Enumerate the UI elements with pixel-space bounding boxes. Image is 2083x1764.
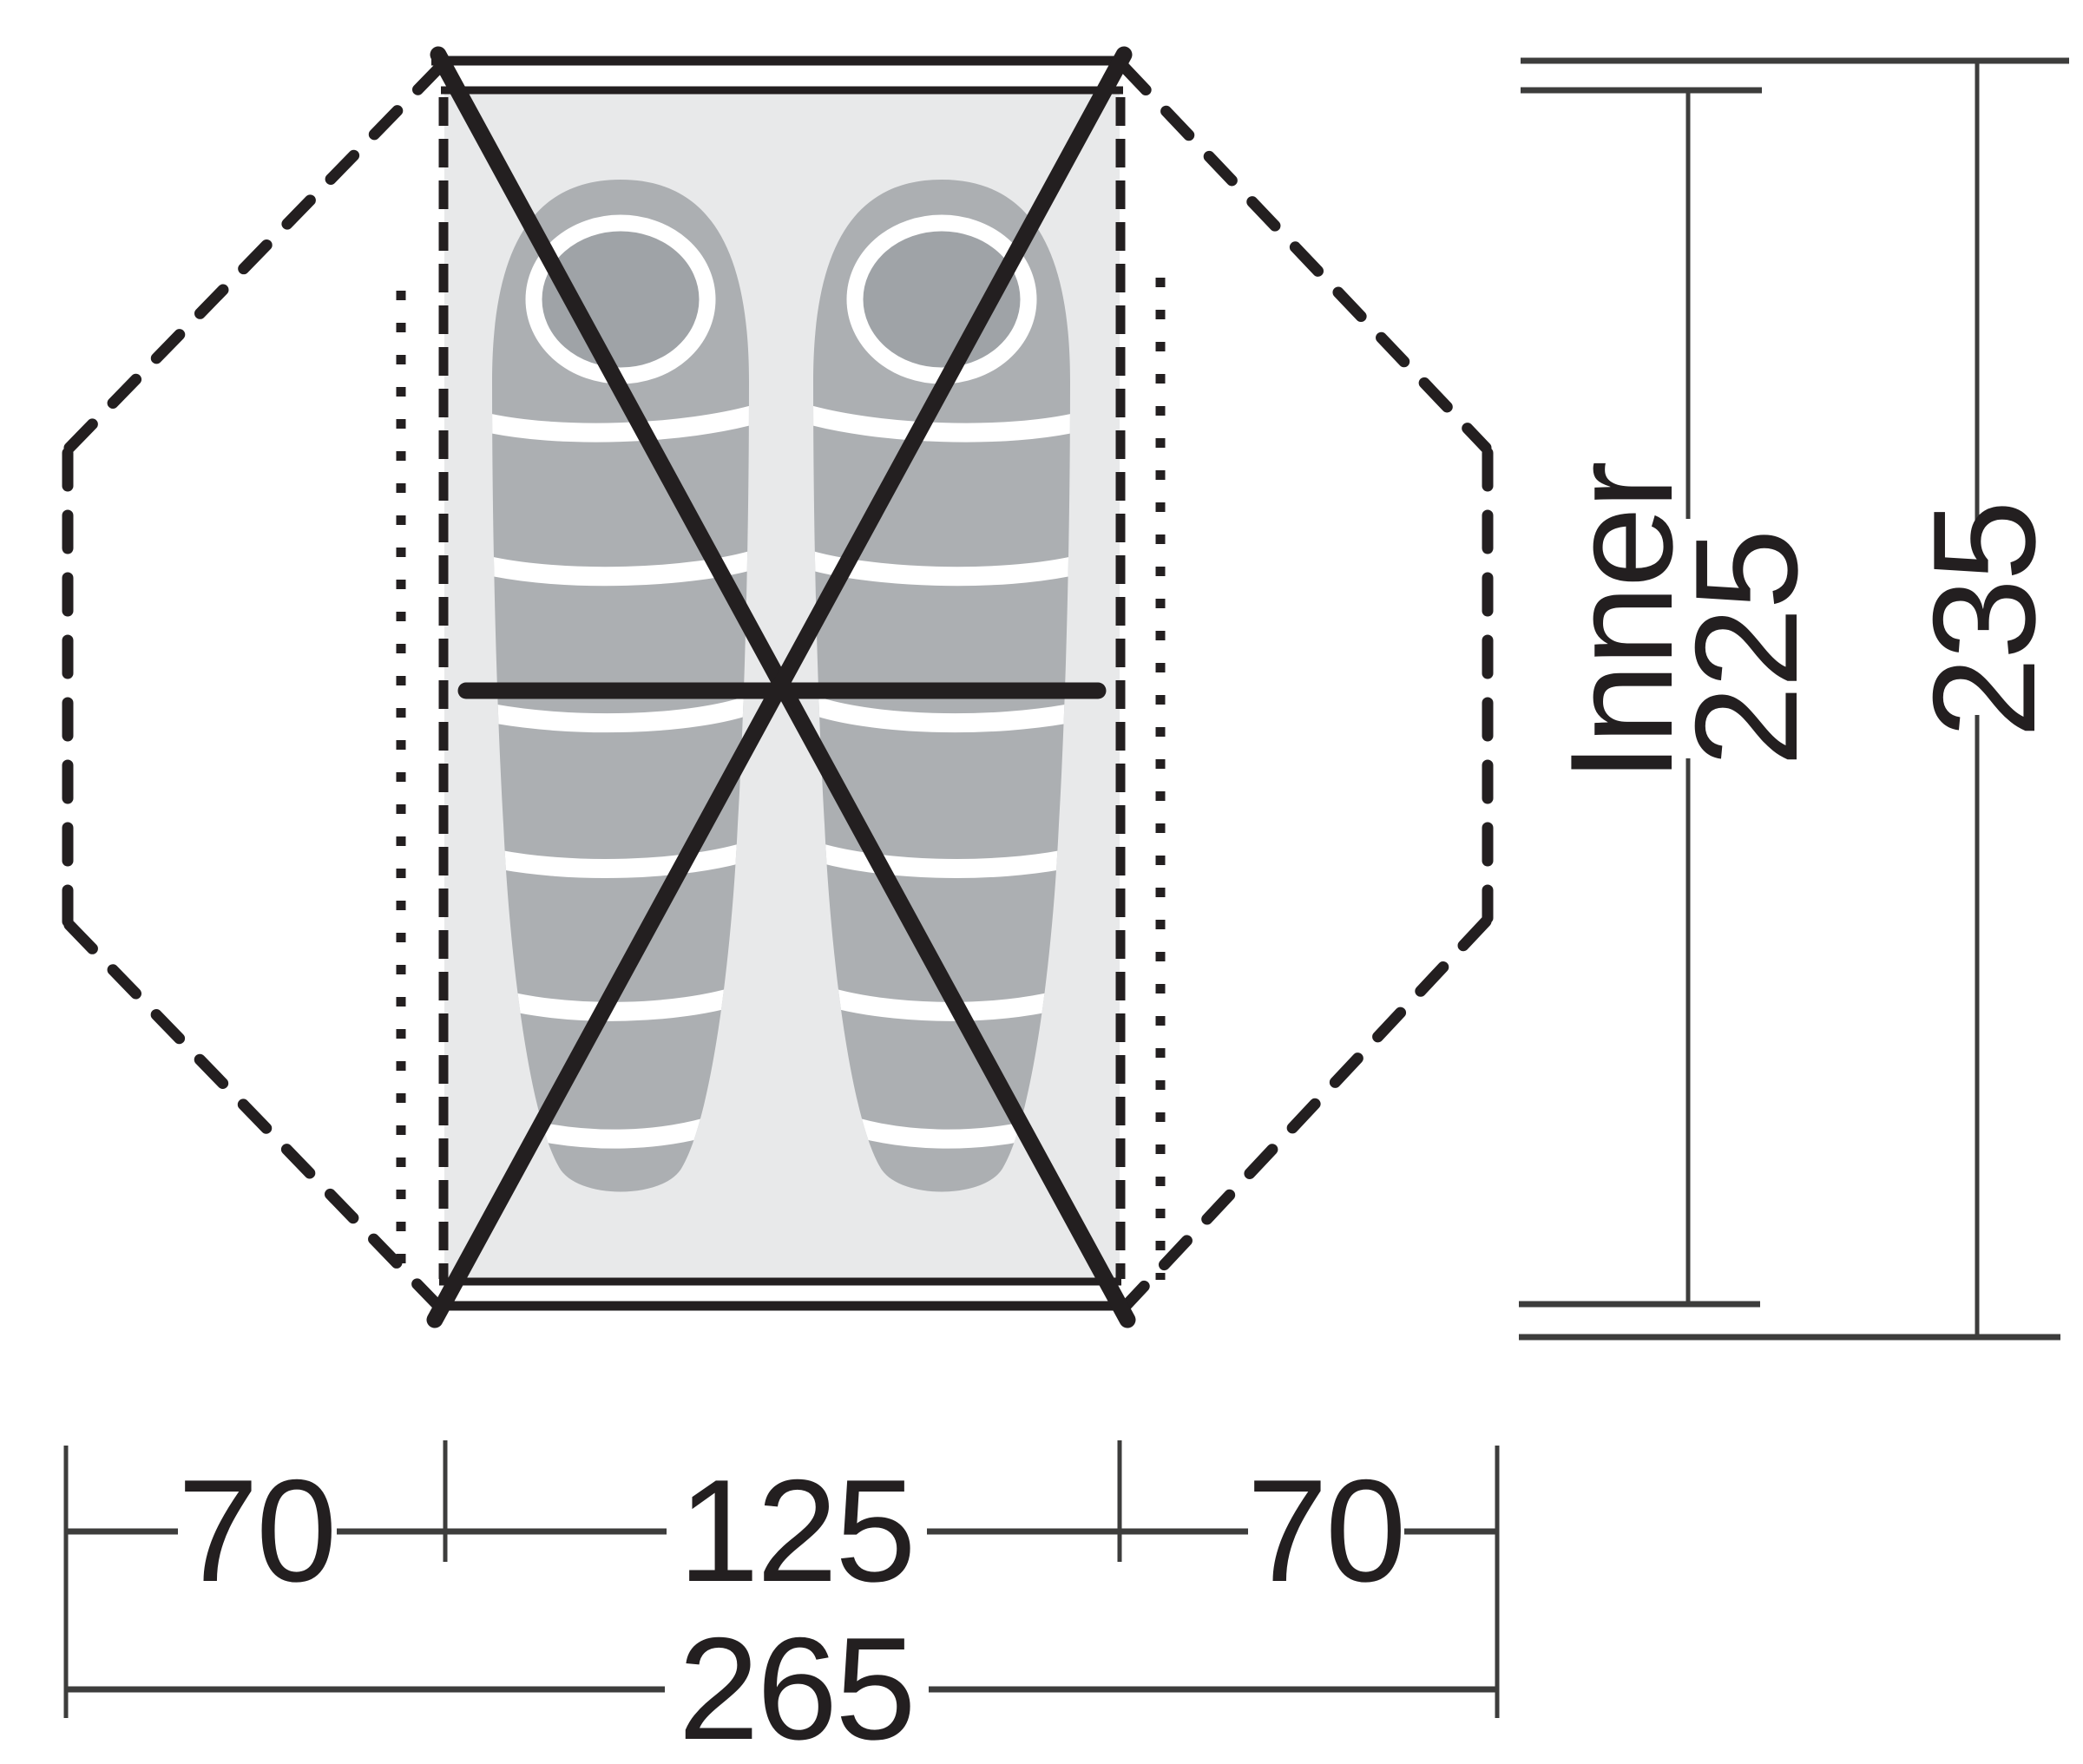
inner-width-label: 125 (678, 1449, 913, 1612)
left-porch-width-label: 70 (178, 1449, 335, 1612)
flysheet-edge-bottom-left (69, 925, 437, 1305)
inner-length-label-value: 225 (1665, 531, 1828, 766)
width-dimension-lines: 70 125 70 265 (66, 1440, 1497, 1764)
length-dimension-lines: Inner 225 235 (1519, 61, 2069, 1337)
sleeping-bag-right-hood (855, 223, 1028, 376)
total-width-label: 265 (678, 1607, 913, 1764)
tent-floorplan-canvas: Inner 225 235 70 125 70 265 (0, 0, 2083, 1764)
right-porch-width-label: 70 (1247, 1449, 1404, 1612)
flysheet-edge-top-left (69, 66, 441, 448)
sleeping-bag-left-hood (534, 223, 707, 376)
tent-floorplan-diagram: Inner 225 235 70 125 70 265 (0, 0, 2083, 1764)
flysheet-edge-bottom-right (1127, 921, 1486, 1305)
flysheet-edge-top-right (1123, 66, 1486, 448)
outer-length-label-value: 235 (1902, 502, 2066, 738)
